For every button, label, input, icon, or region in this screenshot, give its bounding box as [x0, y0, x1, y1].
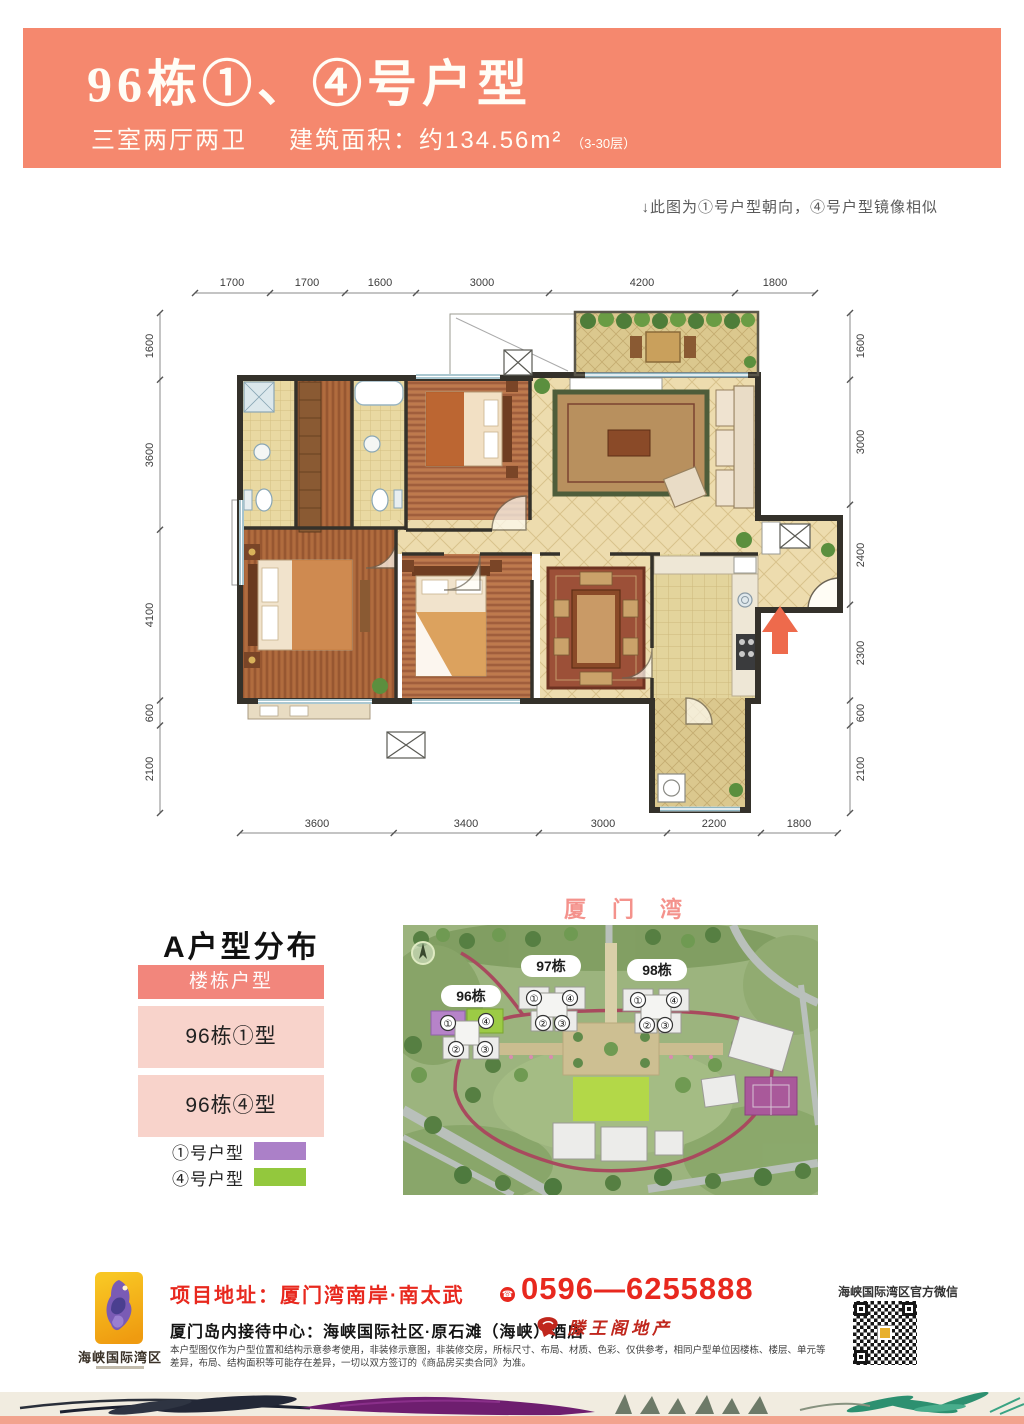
page-title: 96栋①、④号户型 — [87, 44, 532, 116]
svg-text:600: 600 — [855, 704, 867, 722]
svg-text:2300: 2300 — [855, 641, 867, 665]
svg-text:1700: 1700 — [295, 277, 319, 289]
bay-title: 厦门湾 — [403, 892, 843, 924]
island-graphic — [95, 1272, 143, 1344]
floor-range: （3-30层） — [571, 136, 636, 151]
table-row: 96栋①型 — [138, 1006, 324, 1068]
agency-block: 滕王阁地产 — [536, 1314, 673, 1339]
phone-block: ☎ 0596—6255888 — [500, 1271, 754, 1307]
table-header: 楼栋户型 — [138, 965, 324, 999]
svg-text:④: ④ — [670, 996, 679, 1007]
legend-row: ①号户型 — [172, 1140, 306, 1162]
wechat-qr-code — [853, 1301, 917, 1365]
svg-text:3600: 3600 — [144, 443, 156, 467]
legend-row: ④号户型 — [172, 1166, 306, 1188]
svg-text:1800: 1800 — [787, 818, 811, 830]
distribution-heading: A户型分布 — [163, 922, 320, 966]
svg-text:③: ③ — [661, 1021, 670, 1032]
svg-text:③: ③ — [481, 1045, 490, 1056]
svg-text:2200: 2200 — [702, 818, 726, 830]
legend-label: ①号户型 — [172, 1139, 248, 1164]
svg-text:98栋: 98栋 — [642, 962, 672, 978]
floorplan: 1700 1700 1600 3000 4200 1800 1600 3600 … — [140, 250, 880, 860]
site-map-drawing: 96栋 ① ④ ② ③ 97栋 ① ④ ② ③ — [403, 925, 818, 1195]
svg-text:2400: 2400 — [855, 543, 867, 567]
svg-text:3000: 3000 — [855, 430, 867, 454]
table-row: 96栋④型 — [138, 1075, 324, 1137]
svg-text:1600: 1600 — [855, 334, 867, 358]
wardrobe — [299, 382, 321, 532]
reception-center: 厦门岛内接待中心：海峡国际社区·原石滩（海峡）酒店 — [170, 1318, 584, 1342]
svg-text:3000: 3000 — [470, 277, 494, 289]
brand-logo — [95, 1272, 143, 1344]
header-subtitle: 三室两厅两卫建筑面积：约134.56m² （3-30层） — [91, 120, 636, 155]
svg-text:①: ① — [530, 994, 539, 1005]
svg-text:1800: 1800 — [763, 277, 787, 289]
legend-swatch-green — [254, 1168, 306, 1186]
wechat-label: 海峡国际湾区官方微信 — [838, 1283, 958, 1300]
distribution-table: 楼栋户型 96栋①型 96栋④型 — [138, 965, 324, 1137]
unit-legend: ①号户型 ④号户型 — [172, 1140, 306, 1192]
compass-icon — [412, 942, 434, 964]
project-address: 项目地址：厦门湾南岸·南太武 — [170, 1279, 465, 1308]
svg-text:3000: 3000 — [591, 818, 615, 830]
svg-text:97栋: 97栋 — [536, 958, 566, 974]
qr-finder — [902, 1302, 916, 1316]
bottom-accent-bar — [0, 1416, 1024, 1424]
svg-text:②: ② — [539, 1019, 548, 1030]
svg-text:3400: 3400 — [454, 818, 478, 830]
svg-text:96栋: 96栋 — [456, 988, 486, 1004]
svg-text:2100: 2100 — [144, 757, 156, 781]
legend-label: ④号户型 — [172, 1165, 248, 1190]
phone-icon: ☎ — [500, 1287, 515, 1302]
svg-text:1600: 1600 — [144, 334, 156, 358]
flyer-page: 96栋①、④号户型 三室两厅两卫建筑面积：约134.56m² （3-30层） ↓… — [0, 0, 1024, 1424]
site-map: 96栋 ① ④ ② ③ 97栋 ① ④ ② ③ — [403, 925, 818, 1195]
svg-text:4100: 4100 — [144, 603, 156, 627]
brand-name: 海峡国际湾区 — [78, 1347, 162, 1366]
svg-text:②: ② — [643, 1021, 652, 1032]
orientation-note: ↓此图为①号户型朝向，④号户型镜像相似 — [641, 196, 938, 217]
legal-disclaimer: 本户型图仅作为户型位置和结构示意参考使用，非装修示意图，非装修交房，所标尺寸、布… — [170, 1344, 832, 1370]
leaf-strip — [0, 1392, 1024, 1416]
svg-text:1600: 1600 — [368, 277, 392, 289]
svg-text:②: ② — [452, 1045, 461, 1056]
legend-swatch-purple — [254, 1142, 306, 1160]
header-banner: 96栋①、④号户型 三室两厅两卫建筑面积：约134.56m² （3-30层） — [23, 28, 1001, 168]
room-config: 三室两厅两卫 — [91, 127, 247, 154]
balcony-table — [646, 332, 680, 362]
svg-text:④: ④ — [482, 1017, 491, 1028]
svg-text:③: ③ — [558, 1019, 567, 1030]
qr-finder — [854, 1350, 868, 1364]
qr-center-logo — [878, 1326, 892, 1340]
agency-name: 滕王阁地产 — [568, 1314, 673, 1339]
brand-caption-line — [96, 1366, 144, 1369]
svg-text:④: ④ — [566, 994, 575, 1005]
dining-set — [548, 568, 644, 688]
svg-text:4200: 4200 — [630, 277, 654, 289]
floorplan-drawing: 1700 1700 1600 3000 4200 1800 1600 3600 … — [140, 250, 880, 860]
qr-finder — [854, 1302, 868, 1316]
agency-seal-icon — [536, 1316, 560, 1338]
svg-text:1700: 1700 — [220, 277, 244, 289]
svg-text:①: ① — [444, 1019, 453, 1030]
balcony-chair — [684, 336, 696, 358]
entrance-arrow — [762, 606, 798, 654]
svg-text:3600: 3600 — [305, 818, 329, 830]
balcony-chair — [630, 336, 642, 358]
svg-text:①: ① — [634, 996, 643, 1007]
svg-text:600: 600 — [144, 704, 156, 722]
phone-number: 0596—6255888 — [521, 1271, 754, 1307]
built-area: 建筑面积：约134.56m² — [289, 127, 562, 154]
svg-text:2100: 2100 — [855, 757, 867, 781]
